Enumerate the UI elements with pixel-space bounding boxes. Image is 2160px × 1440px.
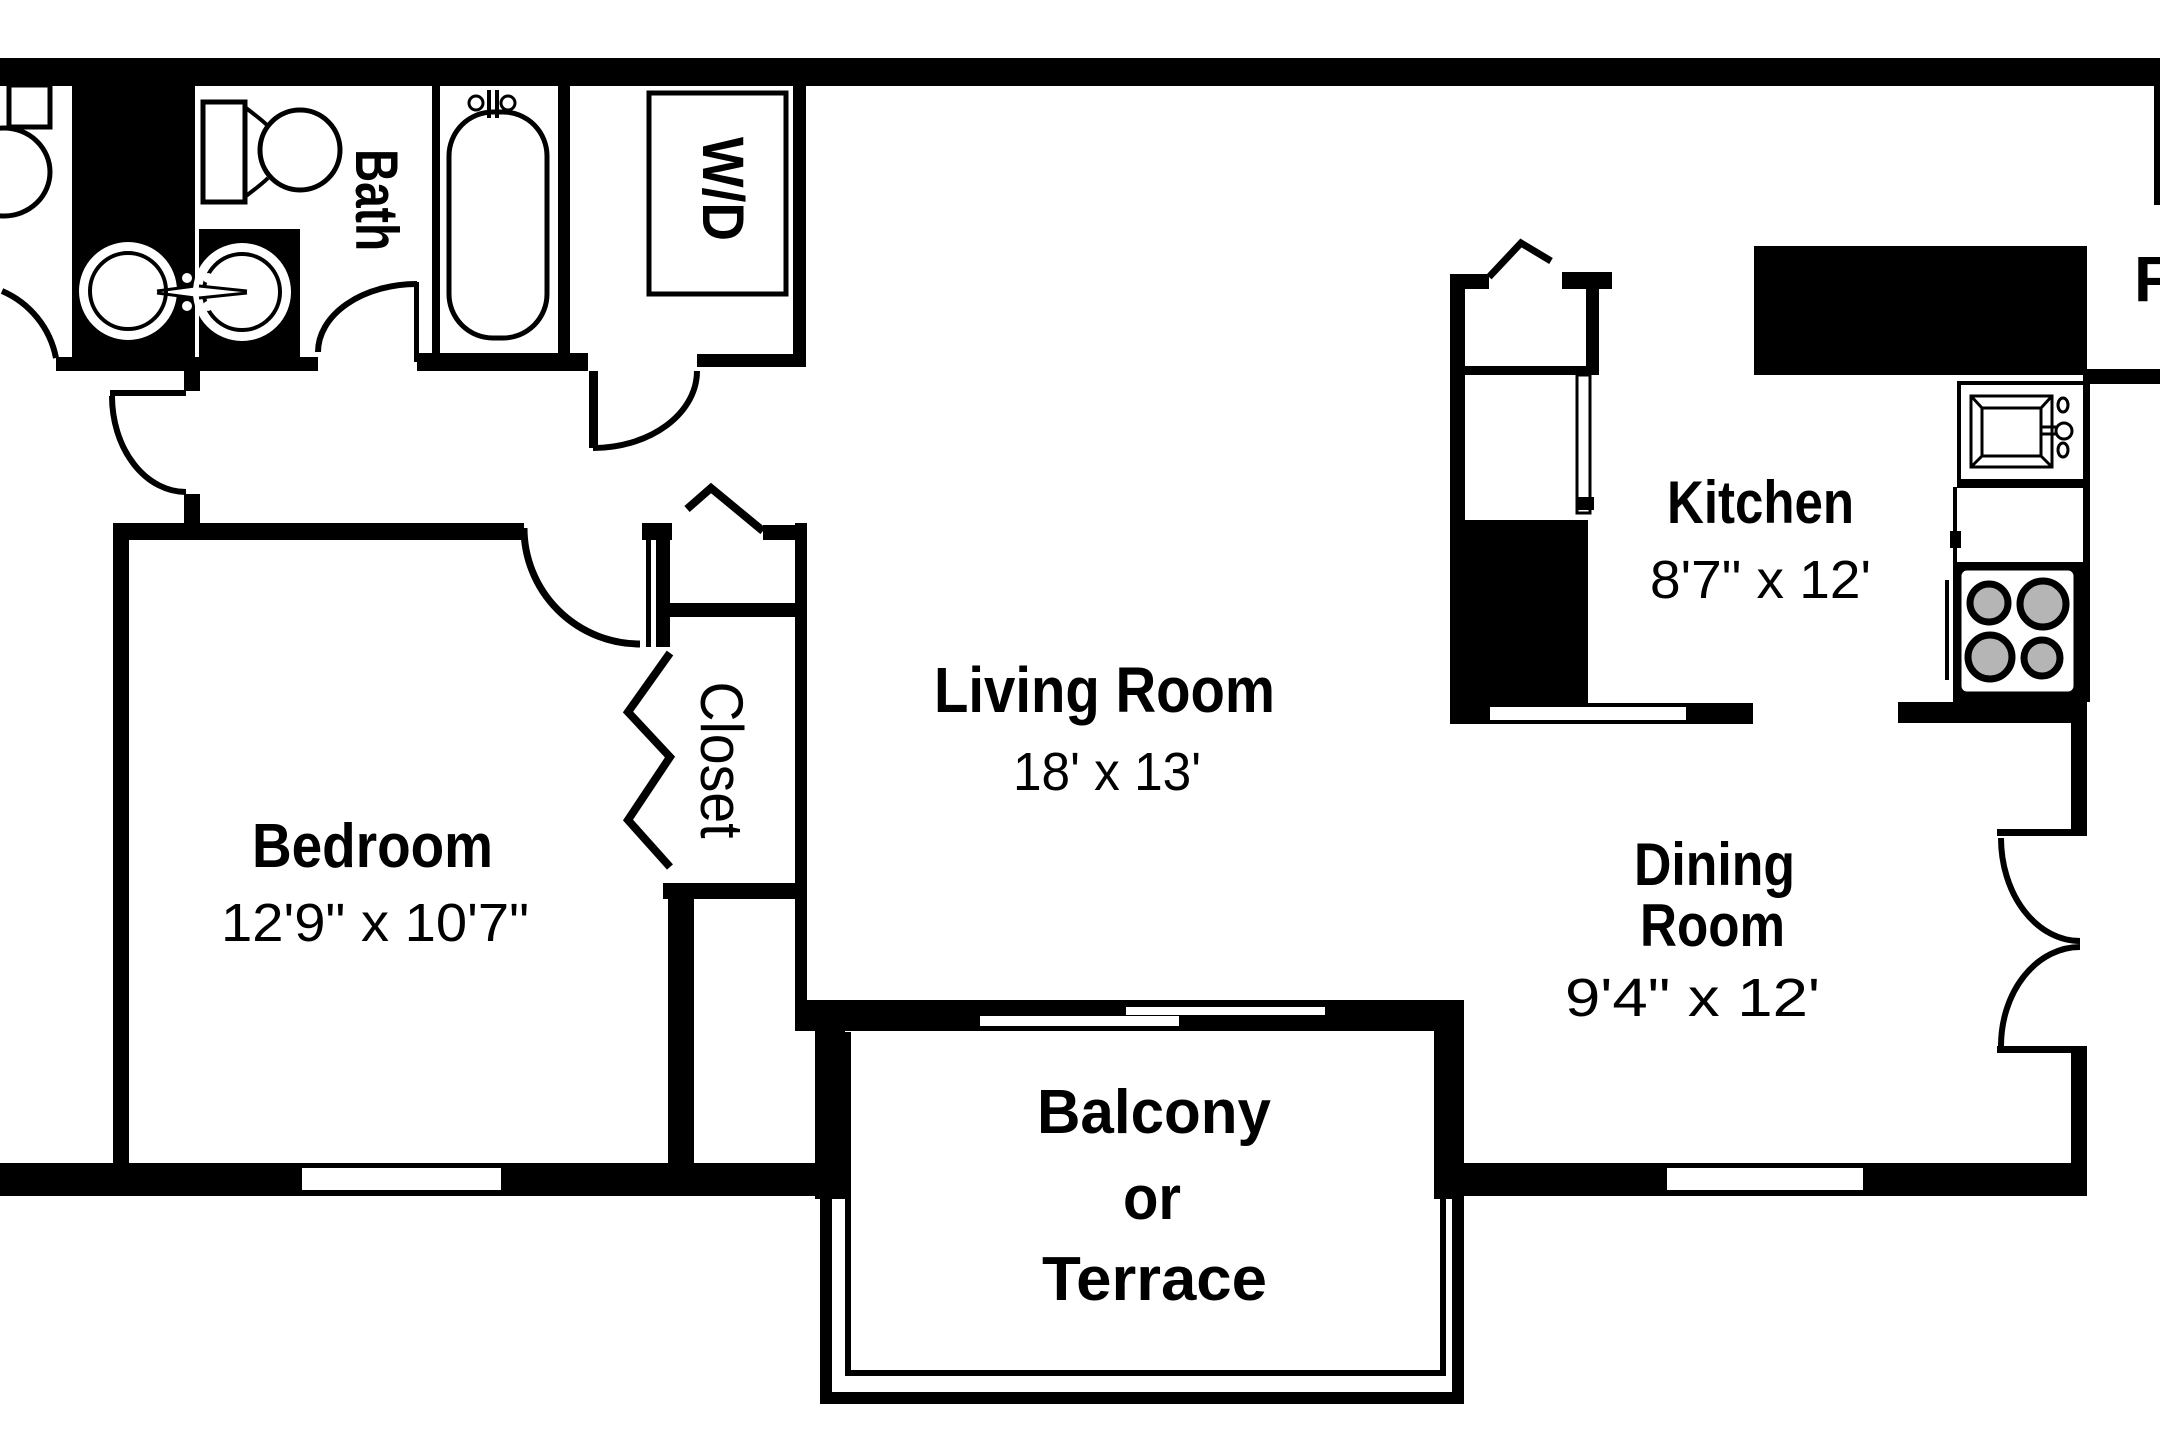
svg-text:W/D: W/D [690,137,755,241]
svg-text:Terrace: Terrace [1042,1245,1267,1314]
svg-text:Living Room: Living Room [934,654,1275,726]
svg-text:Closet: Closet [688,682,755,839]
svg-text:or: or [1123,1164,1181,1233]
svg-text:F: F [2134,243,2160,315]
svg-text:8'7" x 12': 8'7" x 12' [1650,550,1871,610]
svg-text:Room: Room [1640,892,1785,959]
svg-text:9'4" x 12': 9'4" x 12' [1565,968,1820,1028]
svg-text:Kitchen: Kitchen [1667,469,1854,536]
svg-text:Bath: Bath [343,149,410,251]
svg-text:12'9" x 10'7": 12'9" x 10'7" [221,893,529,953]
svg-text:18' x 13': 18' x 13' [1013,742,1201,802]
svg-text:Dining: Dining [1634,831,1795,898]
svg-text:Balcony: Balcony [1037,1078,1271,1147]
svg-text:Bedroom: Bedroom [252,812,493,881]
